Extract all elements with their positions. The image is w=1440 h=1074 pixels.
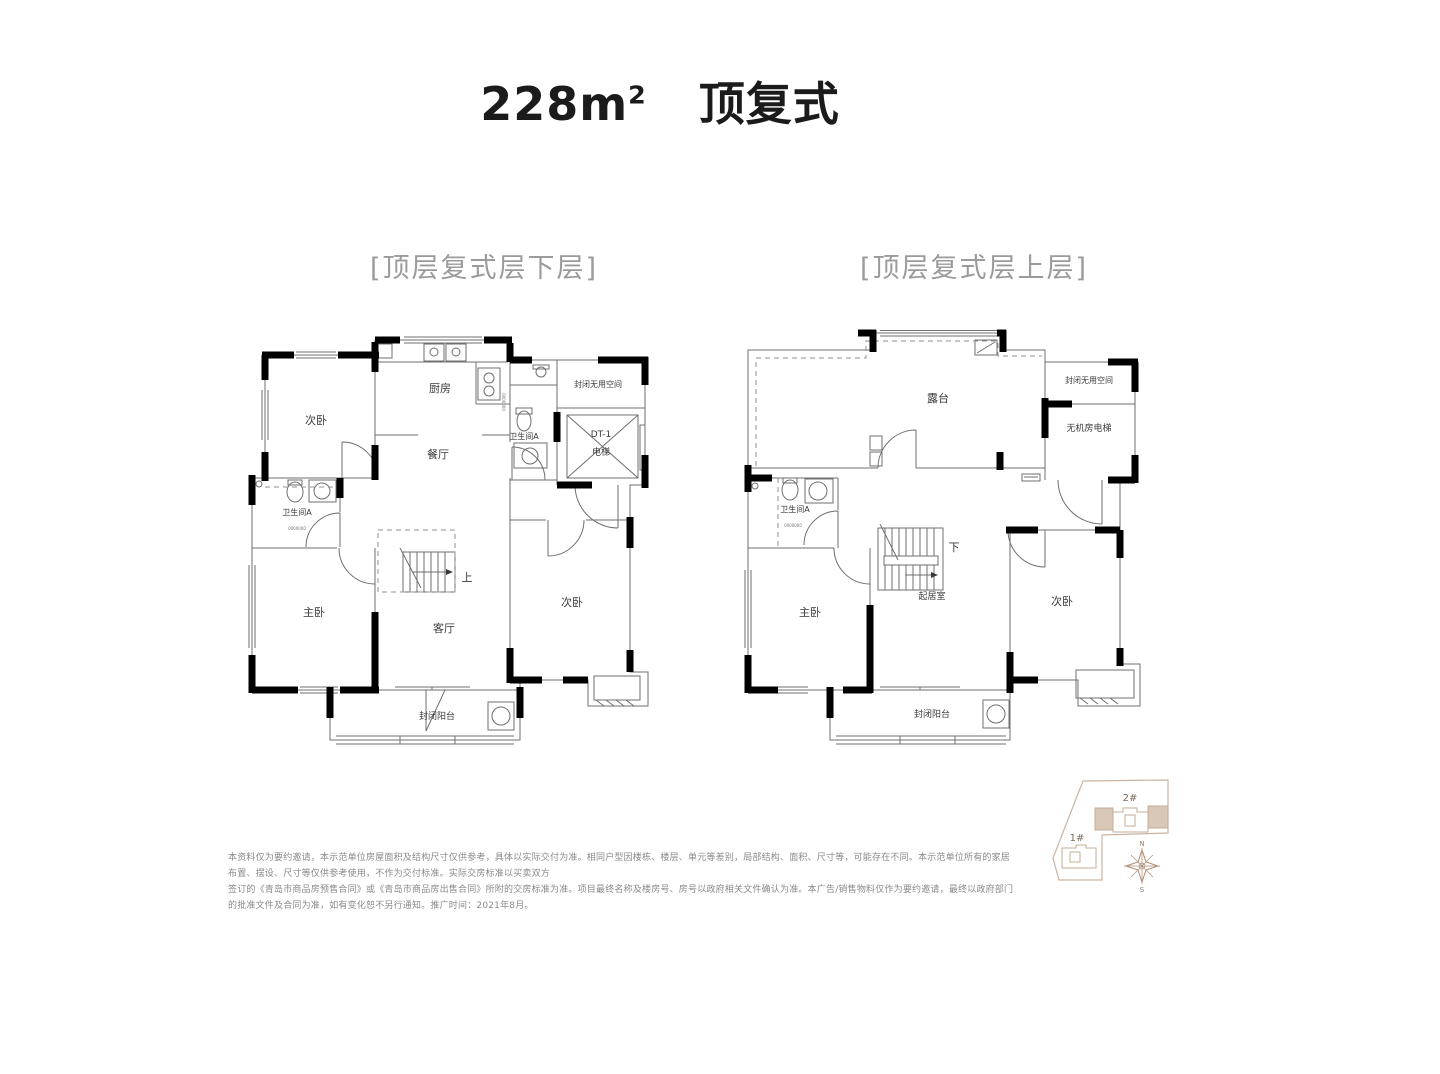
room-label-dining: 餐厅: [427, 447, 449, 461]
upper-walls-thick: [748, 330, 1138, 718]
room-label-sealed-void: 封闭无用空间: [1065, 375, 1113, 385]
room-label-kitchen: 厨房: [429, 382, 451, 395]
dimension-mask: 0000000: [288, 526, 306, 531]
building-2: [1095, 806, 1168, 832]
lower-walls-thin: [249, 337, 648, 744]
disclaimer-line-2: 签订的《青岛市商品房预售合同》或《青岛市商品房出售合同》所附的交房标准为准。项目…: [228, 882, 1018, 914]
floor-plan-upper: 露台 封闭无用空间 无机房电梯 卫生间A 主卧 起居室 次卧 封闭阳台 下 00…: [728, 318, 1143, 748]
compass-icon: [1124, 848, 1160, 884]
disclaimer-text: 本资料仅为要约邀请，本示范单位房屋面积及结构尺寸仅供参考，具体以实际交付为准。相…: [228, 850, 1018, 914]
room-label-living: 客厅: [433, 621, 455, 635]
room-label-bedroom-bottom: 次卧: [561, 595, 583, 609]
area-value: 228m: [480, 77, 628, 131]
building-1-label: 1#: [1070, 833, 1085, 844]
dimension-mask: 0000000: [784, 523, 802, 528]
room-label-terrace: 露台: [927, 391, 949, 405]
room-label-master: 主卧: [799, 606, 821, 619]
compass-north-label: N: [1139, 840, 1144, 848]
room-label-family-room: 起居室: [918, 590, 945, 602]
room-label-balcony: 封闭阳台: [914, 708, 950, 720]
layout-type: 顶复式: [699, 77, 840, 131]
building-1: [1062, 845, 1096, 868]
room-label-elevator: 电梯: [592, 446, 610, 458]
elevator-code-label: DT-1: [591, 430, 612, 440]
room-label-balcony: 封闭阳台: [419, 710, 455, 722]
room-label-bath: 卫生间A: [780, 504, 810, 514]
upper-dashed-lines: [756, 341, 1042, 548]
building-2-label: 2#: [1123, 793, 1138, 804]
caption-upper-level: [顶层复式层上层]: [824, 246, 1124, 285]
room-label-mrl-elevator: 无机房电梯: [1066, 422, 1111, 434]
room-label-sealed-void: 封闭无用空间: [574, 379, 622, 389]
disclaimer-line-1: 本资料仅为要约邀请，本示范单位房屋面积及结构尺寸仅供参考，具体以实际交付为准。相…: [228, 850, 1018, 882]
room-label-bedroom: 次卧: [1051, 594, 1073, 608]
stair-direction-up: 上: [462, 571, 473, 584]
caption-lower-level: [顶层复式层下层]: [334, 246, 634, 285]
floorplan-page: 228m2顶复式 [顶层复式层下层] [顶层复式层上层]: [0, 0, 1440, 1074]
stair-direction-down: 下: [949, 541, 960, 554]
site-plan: 2# 1# N S: [1040, 765, 1235, 900]
page-title: 228m2顶复式: [0, 68, 1320, 134]
room-label-master: 主卧: [303, 606, 325, 619]
room-label-bath-left: 卫生间A: [282, 507, 312, 517]
room-label-bath-right: 卫生间A: [509, 431, 539, 441]
dimension-mask: 0000000: [501, 393, 506, 411]
room-label-bedroom-top: 次卧: [305, 413, 327, 427]
floor-plan-lower: 次卧 厨房 餐厅 卫生间A 封闭无用空间 DT-1 电梯 卫生间A 主卧 客厅 …: [240, 328, 655, 750]
area-superscript: 2: [628, 81, 647, 110]
lower-dashed-lines: [265, 487, 455, 592]
lower-room-labels: 次卧 厨房 餐厅 卫生间A 封闭无用空间 DT-1 电梯 卫生间A 主卧 客厅 …: [282, 379, 622, 722]
compass-south-label: S: [1140, 886, 1145, 894]
